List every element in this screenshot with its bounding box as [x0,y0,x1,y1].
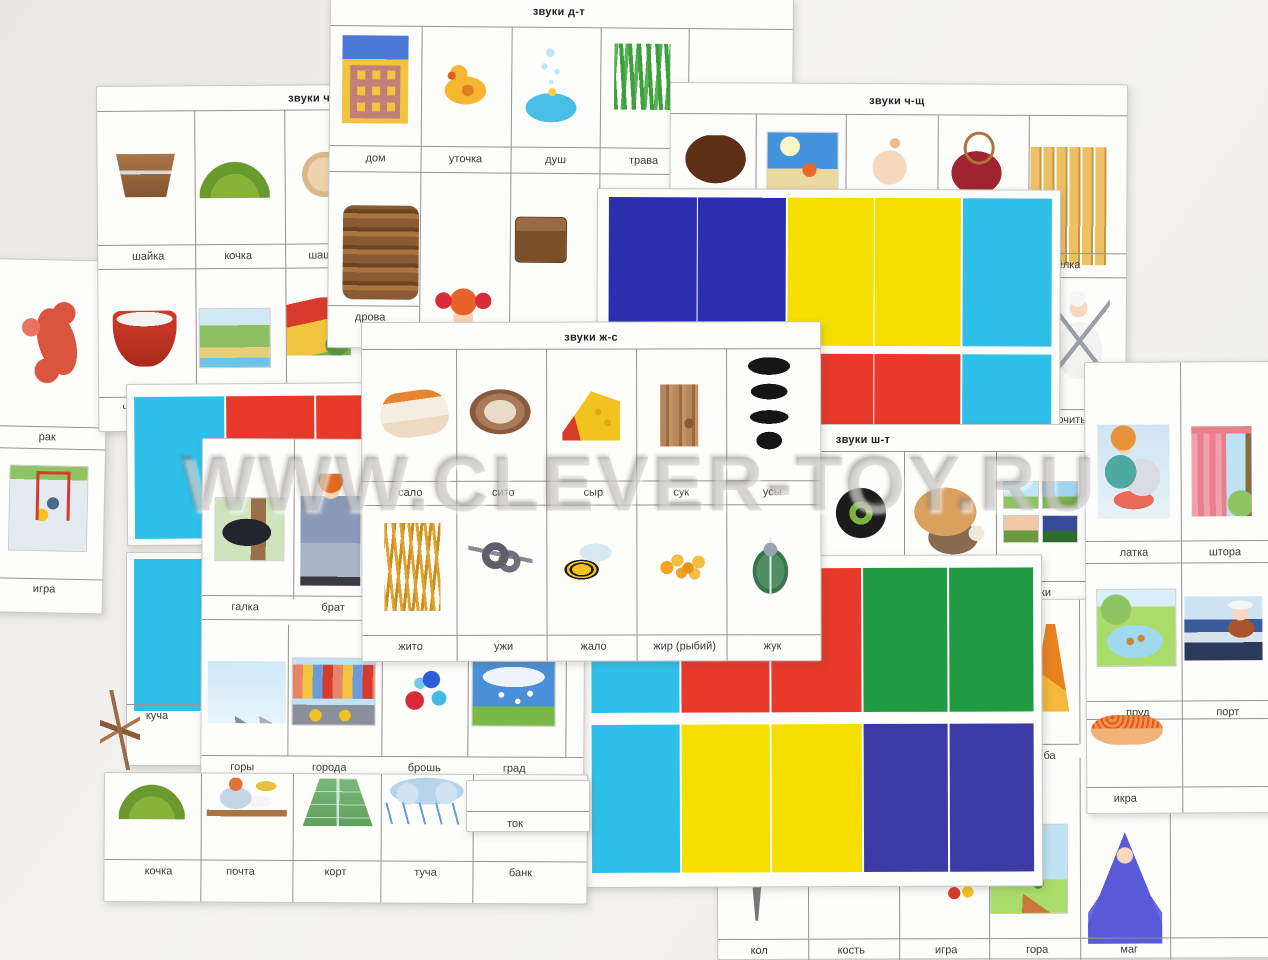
hail-picture [471,660,555,726]
grid-line [284,110,287,430]
wheat-picture [384,523,440,611]
card-title: звуки д-т [533,7,585,18]
grid-line [0,425,105,429]
word-label: банк [509,868,532,879]
city-traffic-picture [291,657,375,725]
grid-line [671,113,1127,116]
word-label: туча [414,868,437,879]
moustaches-picture [746,354,792,452]
beetle-picture [742,536,798,596]
grid-line [1086,540,1268,542]
stamp-evening [1003,515,1039,543]
ox-with-sack-picture [911,483,989,559]
word-label: жир (рыбий) [653,641,716,652]
grid-line [362,480,820,482]
word-label: штора [1209,547,1241,558]
word-label: уточка [449,154,482,165]
riverbank-picture [199,308,271,369]
word-label: жук [764,641,782,652]
post-office-picture [207,778,287,824]
cyan-block [962,354,1051,426]
red-block [874,354,960,426]
green-block [863,568,948,712]
word-label: кочка [224,251,252,262]
crayfish-picture [9,289,100,400]
shower-bath-picture [522,39,581,126]
yellow-block [874,198,961,346]
grid-line [331,25,793,30]
word-label: кость [838,945,865,956]
grid-line [1079,600,1081,744]
grid-line [509,27,513,349]
cyan-block [592,725,681,873]
beach-picture [766,132,838,196]
mountains-picture [208,661,286,723]
grid-line [718,937,1268,940]
word-label: игра [935,945,957,956]
word-label: порт [1216,707,1239,718]
house-picture [342,35,409,124]
word-label: сало [398,488,422,499]
captain-port-picture [1184,596,1262,660]
word-label: галка [231,602,259,613]
word-label: душ [545,155,566,166]
grid-line [815,451,1105,452]
navy-block [864,724,949,872]
hillock-picture [199,154,269,198]
stamp-morning [1003,481,1039,509]
rain-cloud-picture [383,776,471,824]
word-label: куча [146,711,168,722]
word-label: трава [629,156,658,167]
word-label: маг [1120,945,1138,956]
brooch-picture [392,662,456,724]
word-label: шайка [132,252,164,263]
red-block [226,396,314,443]
tree-knot-picture [660,384,698,446]
pond-with-ducks-picture [1096,589,1176,667]
card-title: звуки ч-щ [869,96,924,107]
grid-line [1087,786,1268,788]
green-block [949,567,1034,711]
sieve-picture [468,385,532,439]
chest-picture [515,217,567,263]
hair-fringe-picture [682,135,748,191]
word-label: кочка [145,866,173,877]
grass-picture [614,43,671,109]
tyre-picture [829,471,893,555]
grid-line [419,26,423,348]
stamp-day [1042,481,1078,509]
word-label-partial: ба [1043,751,1055,762]
word-label: города [312,763,346,774]
word-label: гора [1026,945,1048,956]
grid-line [1080,758,1082,960]
fish-oil-capsules-picture [648,544,714,586]
word-label: жало [580,642,606,653]
wizard-picture [1088,827,1162,943]
word-label: сито [492,488,515,499]
word-label: сук [673,487,689,498]
grid-line [362,348,820,350]
sewing-patch-picture [1097,425,1169,519]
word-label: ток [507,819,523,830]
word-label: жито [398,642,423,653]
word-label: брошь [408,763,441,774]
word-label: брат [321,603,344,614]
caviar-picture [1091,715,1163,745]
card-title: звуки ж-с [564,333,618,344]
card-title: звуки ч [288,93,330,104]
grid-line [287,624,289,755]
card-rak: рак игра [0,258,110,614]
bee-picture [558,539,616,589]
grid-line [363,634,821,636]
grid-line [467,811,589,812]
grid-line [380,774,382,902]
word-label: горы [230,762,254,773]
card-title: звуки ш-т [836,435,890,446]
word-label: сыр [584,488,604,499]
word-label: рак [39,432,56,443]
wooden-tub-picture [113,146,177,198]
grid-line [1086,562,1268,564]
grid-line [292,774,294,902]
grid-line [328,305,419,307]
word-label: игра [33,584,56,595]
navy-block [950,723,1035,871]
cheese-picture [562,389,620,441]
hillock-picture [119,777,185,819]
word-label: усы [763,487,782,498]
yellow-block [772,724,863,872]
stamp-night [1042,515,1078,543]
word-label: почта [226,867,255,878]
red-cup-picture [113,310,177,366]
word-label: дом [365,153,385,164]
grid-line [201,755,583,758]
grid-line [1087,700,1268,702]
curtain-picture [1191,426,1251,516]
product-photo-stage: рак игра звуки ч шайка кочка шаш ч звуки… [0,0,1268,960]
tennis-court-picture [303,778,373,826]
snakes-picture [468,535,532,593]
cyan-block [962,198,1052,346]
word-label: икра [1114,794,1137,805]
word-label: кол [751,946,768,957]
word-label: корт [324,867,346,878]
card-right-column: латка штора пруд порт икра [1084,361,1268,814]
grid-line [105,859,587,863]
grid-line [194,110,197,430]
boy-with-bag-picture [300,474,361,586]
antlers-picture [100,690,140,770]
hockey-game-picture [8,464,89,552]
lard-picture [377,386,451,441]
grid-line [1180,362,1183,812]
card-zvuki-zh-s: звуки ж-с сало сито сыр сук усы жито ужи… [361,321,822,662]
jackdaw-picture [214,497,284,561]
grid-line [293,439,295,599]
grid-line [0,577,102,581]
grid-line [362,504,820,506]
word-label: град [503,764,526,775]
word-label: ужи [494,642,513,653]
wax-seal-picture [946,130,1006,194]
day-night-stamps-picture [1003,481,1083,545]
grid-line [0,447,105,451]
firewood-picture [342,205,419,300]
yellow-block [682,724,771,872]
word-label: латка [1120,548,1149,559]
card-tok: ток [466,780,590,832]
grid-line [200,774,202,902]
duckling-picture [434,58,492,111]
